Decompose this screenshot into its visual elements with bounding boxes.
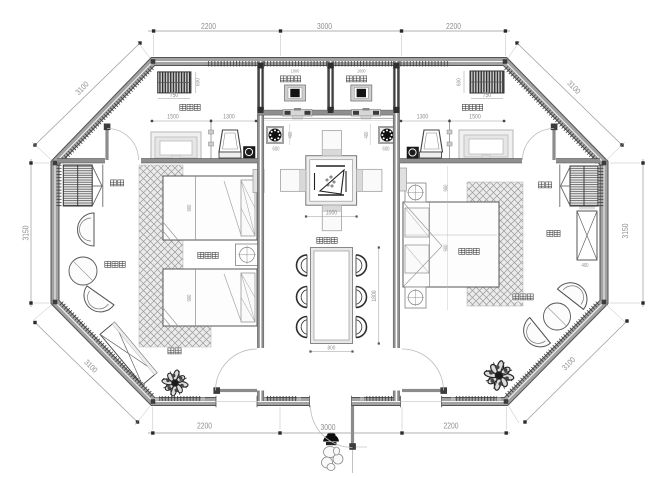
svg-text:2200: 2200 bbox=[201, 22, 216, 31]
svg-text:900: 900 bbox=[187, 294, 193, 301]
svg-text:1500: 1500 bbox=[167, 114, 179, 121]
svg-text:2200: 2200 bbox=[444, 422, 459, 431]
svg-text:3000: 3000 bbox=[317, 22, 332, 31]
svg-text:900: 900 bbox=[444, 244, 450, 251]
svg-text:1800: 1800 bbox=[372, 290, 378, 302]
svg-text:3000: 3000 bbox=[321, 423, 336, 432]
svg-text:1300: 1300 bbox=[417, 114, 429, 121]
svg-text:750: 750 bbox=[170, 93, 179, 99]
svg-text:800: 800 bbox=[328, 346, 336, 352]
svg-text:1500: 1500 bbox=[469, 114, 481, 121]
svg-text:1000: 1000 bbox=[291, 69, 300, 74]
svg-text:1000: 1000 bbox=[326, 211, 338, 217]
svg-text:1300: 1300 bbox=[223, 114, 235, 121]
svg-text:750: 750 bbox=[483, 93, 492, 99]
svg-text:3150: 3150 bbox=[22, 225, 31, 240]
svg-text:400: 400 bbox=[364, 131, 370, 138]
svg-text:1000: 1000 bbox=[357, 69, 366, 74]
svg-text:900: 900 bbox=[187, 204, 193, 211]
svg-text:600: 600 bbox=[457, 78, 463, 86]
svg-text:600: 600 bbox=[196, 78, 202, 86]
svg-text:600: 600 bbox=[273, 147, 280, 153]
svg-text:600: 600 bbox=[383, 147, 390, 153]
svg-text:400: 400 bbox=[582, 263, 589, 269]
svg-text:2200: 2200 bbox=[197, 422, 212, 431]
svg-text:400: 400 bbox=[288, 131, 294, 138]
svg-text:2200: 2200 bbox=[446, 22, 461, 31]
svg-text:900: 900 bbox=[444, 184, 450, 191]
svg-text:3150: 3150 bbox=[621, 223, 630, 238]
